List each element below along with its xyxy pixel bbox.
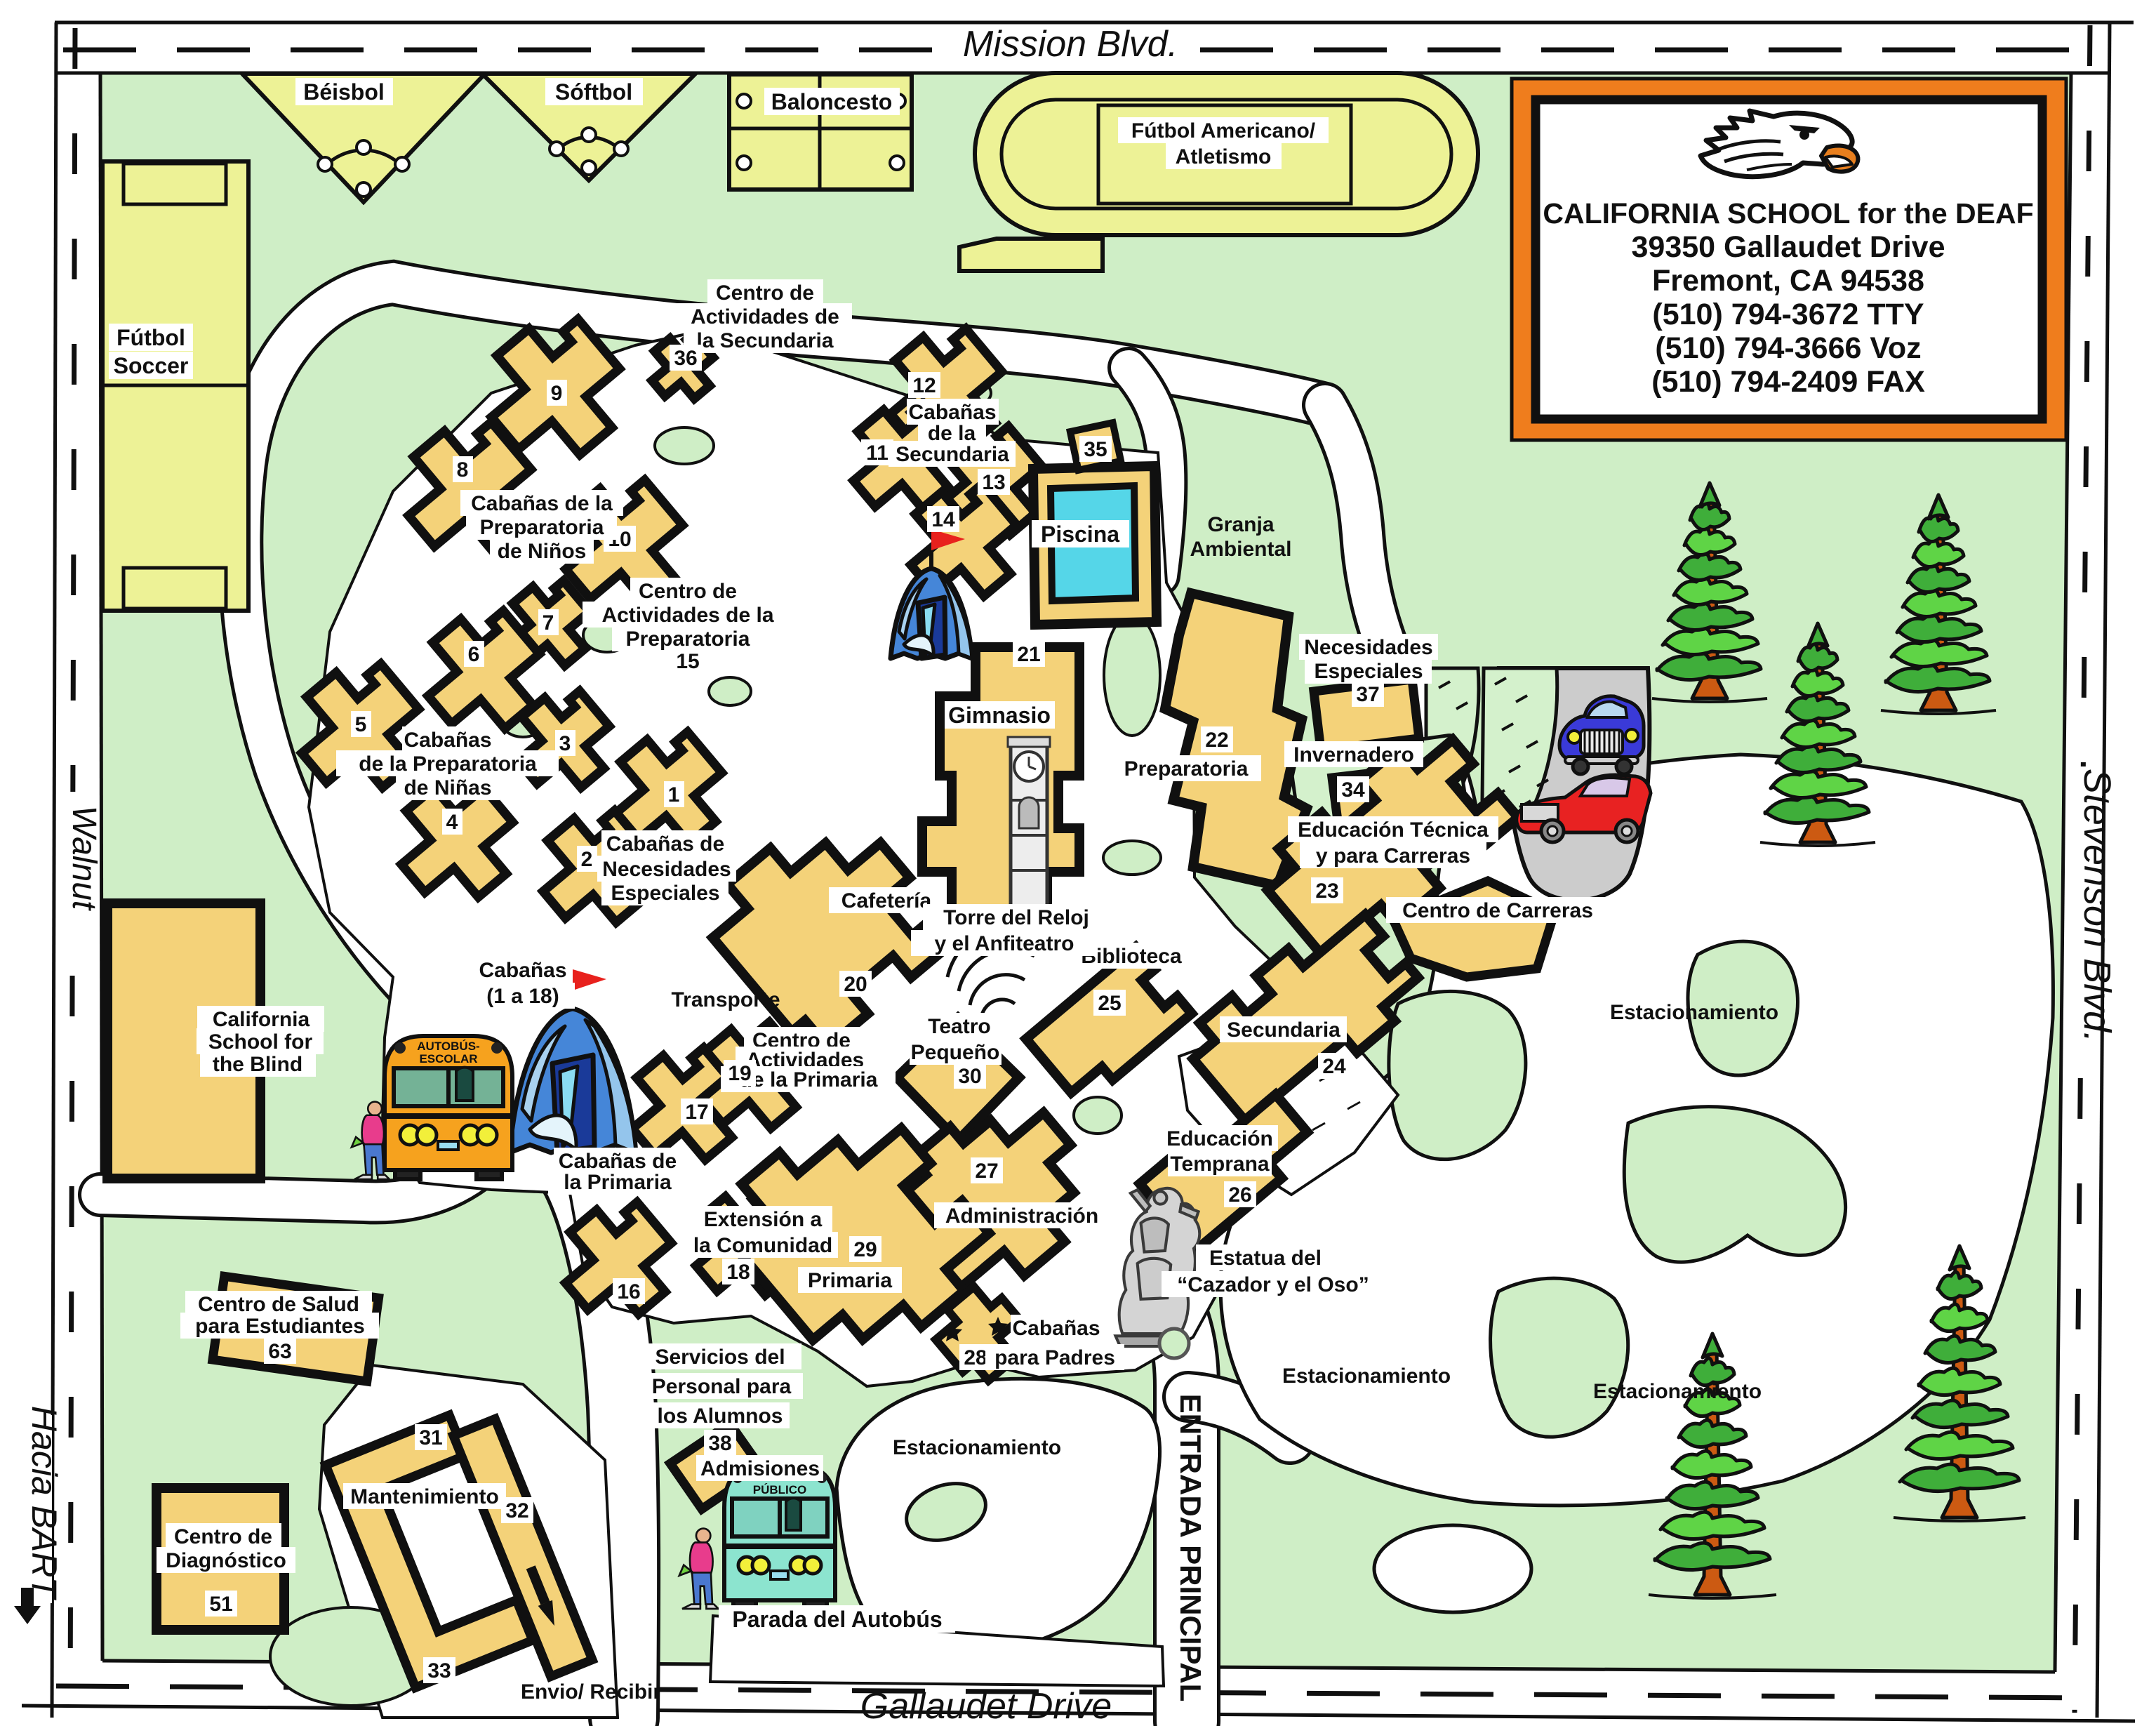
svg-text:la Primaria: la Primaria [564,1171,672,1194]
svg-text:Centro de: Centro de [716,281,814,305]
svg-text:Stevenson Blvd.: Stevenson Blvd. [2076,769,2118,1042]
svg-text:Baloncesto: Baloncesto [771,89,892,114]
svg-text:(510) 794-3666 Voz: (510) 794-3666 Voz [1655,331,1921,365]
svg-text:ESCOLAR: ESCOLAR [419,1052,477,1066]
svg-text:29: 29 [853,1238,877,1261]
svg-text:28: 28 [964,1346,987,1369]
svg-text:Mantenimiento: Mantenimiento [350,1485,499,1508]
svg-text:Primaria: Primaria [808,1269,892,1292]
svg-text:23: 23 [1315,879,1338,903]
svg-text:32: 32 [505,1499,528,1522]
svg-text:39350 Gallaudet Drive: 39350 Gallaudet Drive [1632,230,1945,264]
svg-text:Secundaria: Secundaria [1227,1018,1340,1042]
svg-text:20: 20 [844,973,867,996]
svg-text:de la Primaria: de la Primaria [740,1068,878,1091]
svg-text:“Cazador y el Oso”: “Cazador y el Oso” [1177,1273,1369,1296]
svg-text:38: 38 [708,1432,731,1455]
svg-text:21: 21 [1017,643,1040,666]
svg-text:Hacia BART: Hacia BART [25,1406,64,1601]
svg-text:Cafetería: Cafetería [841,889,932,912]
svg-text:27: 27 [975,1160,998,1183]
svg-text:36: 36 [674,347,697,370]
svg-text:Necesidades: Necesidades [1304,636,1432,659]
svg-text:CALIFORNIA SCHOOL for the DEAF: CALIFORNIA SCHOOL for the DEAF [1543,197,2033,230]
svg-text:30: 30 [958,1065,981,1088]
svg-text:the Blind: the Blind [213,1053,302,1076]
svg-text:Cabañas de: Cabañas de [606,832,724,856]
svg-text:19: 19 [728,1062,751,1085]
svg-text:para Padres: para Padres [994,1346,1115,1369]
svg-text:Granja: Granja [1207,513,1274,536]
svg-text:2: 2 [581,848,593,871]
svg-text:Diagnóstico: Diagnóstico [166,1549,286,1572]
svg-text:ENTRADA PRINCIPAL: ENTRADA PRINCIPAL [1174,1394,1207,1702]
svg-text:Torre del Reloj: Torre del Reloj [943,906,1089,929]
svg-text:School for: School for [208,1030,313,1054]
svg-text:Gallaudet Drive: Gallaudet Drive [860,1686,1112,1726]
svg-text:Estatua del: Estatua del [1209,1247,1322,1270]
svg-text:Estacionamiento: Estacionamiento [1282,1365,1451,1388]
svg-text:18: 18 [726,1261,750,1284]
svg-text:34: 34 [1341,778,1365,802]
svg-text:14: 14 [931,508,955,531]
svg-text:Piscina: Piscina [1041,522,1119,547]
svg-text:Educación Técnica: Educación Técnica [1298,818,1489,842]
svg-text:de Niñas: de Niñas [404,776,491,799]
svg-text:Cabañas: Cabañas [1012,1317,1100,1340]
svg-text:Preparatoria: Preparatoria [480,516,604,539]
svg-text:35: 35 [1084,438,1107,461]
svg-text:Admisiones: Admisiones [700,1457,820,1480]
svg-text:Soccer: Soccer [114,353,189,378]
svg-text:Invernadero: Invernadero [1293,743,1414,766]
svg-text:Especiales: Especiales [611,882,719,905]
svg-text:la Secundaria: la Secundaria [696,329,833,352]
svg-text:Cabañas de la: Cabañas de la [471,492,613,515]
svg-text:la Comunidad: la Comunidad [693,1234,832,1257]
svg-text:12: 12 [912,374,936,397]
svg-text:Educación: Educación [1166,1127,1273,1150]
svg-text:24: 24 [1322,1055,1346,1078]
svg-text:Envio/ Recibir: Envio/ Recibir [521,1680,661,1704]
svg-text:Personal para: Personal para [652,1375,792,1398]
svg-text:Extensión a: Extensión a [704,1208,823,1231]
svg-text:Ambiental: Ambiental [1190,538,1291,561]
svg-text:Fútbol: Fútbol [117,325,185,350]
svg-text:1: 1 [668,783,680,806]
svg-text:5: 5 [355,713,367,736]
svg-text:Especiales: Especiales [1314,660,1423,683]
svg-text:California: California [213,1008,310,1031]
svg-text:Preparatoria: Preparatoria [1124,757,1249,781]
svg-text:Secundaria: Secundaria [896,443,1009,466]
svg-text:Gimnasio: Gimnasio [948,703,1051,728]
svg-text:Atletismo: Atletismo [1176,145,1272,168]
svg-text:Transporte: Transporte [671,988,780,1011]
svg-text:y el Anfiteatro: y el Anfiteatro [935,932,1074,955]
svg-text:31: 31 [419,1426,442,1449]
svg-text:8: 8 [457,458,469,482]
svg-text:22: 22 [1205,729,1228,752]
svg-text:(510) 794-3672 TTY: (510) 794-3672 TTY [1652,298,1924,331]
svg-text:17: 17 [685,1101,708,1124]
svg-text:Centro de: Centro de [174,1525,272,1548]
svg-text:de Niños: de Niños [498,540,587,563]
svg-text:los Alumnos: los Alumnos [658,1405,783,1428]
svg-text:para Estudiantes: para Estudiantes [195,1315,365,1338]
svg-text:Estacionamiento: Estacionamiento [1593,1380,1762,1403]
svg-text:Temprana: Temprana [1170,1153,1269,1176]
svg-text:Preparatoria: Preparatoria [626,628,750,651]
svg-text:(1 a 18): (1 a 18) [486,985,559,1008]
svg-text:63: 63 [268,1340,291,1363]
svg-text:Centro de Carreras: Centro de Carreras [1402,899,1593,922]
svg-text:(510) 794-2409 FAX: (510) 794-2409 FAX [1651,365,1925,399]
svg-text:y para Carreras: y para Carreras [1316,844,1470,868]
svg-text:16: 16 [617,1280,640,1303]
svg-text:Necesidades: Necesidades [602,858,731,881]
svg-text:Administración: Administración [945,1204,1098,1228]
svg-text:Teatro: Teatro [928,1015,990,1038]
svg-text:Actividades de: Actividades de [691,305,839,328]
svg-text:Fremont, CA 94538: Fremont, CA 94538 [1652,264,1924,298]
svg-text:Actividades de la: Actividades de la [601,604,773,627]
svg-text:Pequeño: Pequeño [911,1041,1000,1064]
svg-text:Servicios del: Servicios del [655,1346,785,1369]
svg-text:11: 11 [866,442,889,465]
svg-text:Sóftbol: Sóftbol [555,79,632,105]
svg-text:9: 9 [551,382,563,405]
svg-text:51: 51 [209,1593,232,1616]
svg-text:Cabañas: Cabañas [479,959,566,982]
svg-text:4: 4 [446,811,458,834]
svg-text:Cabañas: Cabañas [404,729,491,752]
svg-text:37: 37 [1356,683,1379,706]
svg-text:Estacionamiento: Estacionamiento [1610,1001,1778,1024]
svg-text:6: 6 [468,643,480,666]
svg-text:de la Preparatoria: de la Preparatoria [359,752,537,776]
svg-text:13: 13 [982,471,1005,494]
svg-text:25: 25 [1098,992,1121,1015]
svg-text:15: 15 [676,650,699,673]
svg-text:Fútbol Americano/: Fútbol Americano/ [1131,119,1316,142]
svg-text:Estacionamiento: Estacionamiento [893,1436,1061,1459]
svg-text:26: 26 [1228,1183,1251,1207]
svg-text:Centro de: Centro de [639,580,737,603]
svg-text:33: 33 [427,1659,451,1682]
svg-text:Mission Blvd.: Mission Blvd. [963,24,1178,65]
svg-text:Parada del Autobús: Parada del Autobús [732,1607,942,1632]
svg-text:Béisbol: Béisbol [303,79,385,105]
svg-text:AUTOBÚS-: AUTOBÚS- [417,1040,479,1053]
svg-text:PÚBLICO: PÚBLICO [753,1483,807,1496]
svg-text:7: 7 [543,611,554,635]
svg-text:Walnut: Walnut [65,806,102,911]
svg-text:3: 3 [559,732,571,755]
